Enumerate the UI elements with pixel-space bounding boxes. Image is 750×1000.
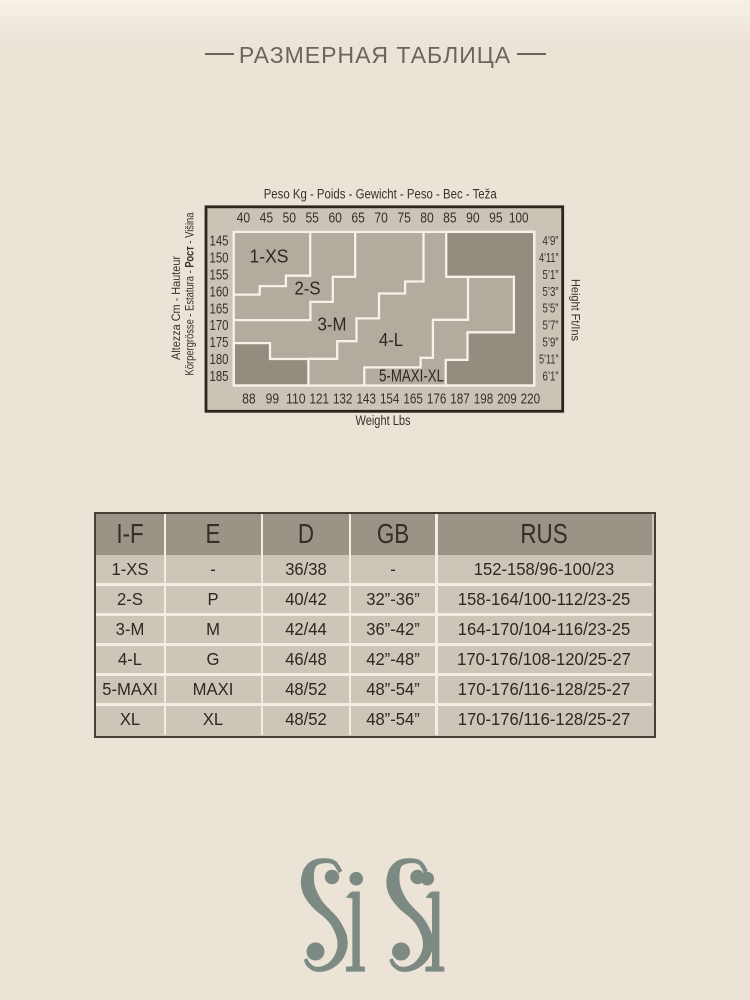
svg-text:145: 145 xyxy=(210,234,229,250)
svg-text:143: 143 xyxy=(356,392,376,408)
svg-text:154: 154 xyxy=(380,392,400,408)
svg-text:5’7”: 5’7” xyxy=(543,319,559,333)
svg-text:5’11”: 5’11” xyxy=(539,353,559,367)
svg-text:160: 160 xyxy=(210,284,229,300)
svg-text:209: 209 xyxy=(497,392,517,408)
svg-text:165: 165 xyxy=(403,392,423,408)
svg-text:2-S: 2-S xyxy=(295,278,321,299)
svg-text:5’1”: 5’1” xyxy=(543,268,559,282)
svg-text:70: 70 xyxy=(374,210,388,226)
svg-text:6’1”: 6’1” xyxy=(543,370,559,384)
svg-text:Körpergrösse - Estatura - Рост: Körpergrösse - Estatura - Рост - Višina xyxy=(183,212,197,375)
svg-text:187: 187 xyxy=(450,392,470,408)
svg-text:99: 99 xyxy=(266,392,280,408)
svg-text:85: 85 xyxy=(443,210,457,226)
svg-text:60: 60 xyxy=(328,210,342,226)
svg-text:50: 50 xyxy=(283,210,297,226)
svg-text:121: 121 xyxy=(310,392,330,408)
svg-text:5’3”: 5’3” xyxy=(543,285,559,299)
svg-text:4’11”: 4’11” xyxy=(539,251,559,265)
svg-text:5’9”: 5’9” xyxy=(543,336,559,350)
svg-text:220: 220 xyxy=(521,392,541,408)
svg-text:45: 45 xyxy=(260,210,274,226)
svg-text:Height Ft/Ins: Height Ft/Ins xyxy=(569,279,583,341)
svg-text:180: 180 xyxy=(210,352,229,368)
svg-text:132: 132 xyxy=(333,392,353,408)
svg-text:65: 65 xyxy=(351,210,365,226)
svg-text:Weight Lbs: Weight Lbs xyxy=(356,413,411,428)
svg-text:Altezza Cm - Hauteur: Altezza Cm - Hauteur xyxy=(169,256,183,360)
svg-text:1-XS: 1-XS xyxy=(250,246,289,267)
svg-text:95: 95 xyxy=(489,210,503,226)
svg-text:176: 176 xyxy=(427,392,447,408)
svg-text:40: 40 xyxy=(237,210,251,226)
svg-text:55: 55 xyxy=(305,210,319,226)
svg-text:150: 150 xyxy=(210,250,229,266)
svg-text:5-MAXI-XL: 5-MAXI-XL xyxy=(379,366,444,386)
svg-text:175: 175 xyxy=(210,335,229,351)
svg-text:90: 90 xyxy=(466,210,480,226)
svg-text:3-M: 3-M xyxy=(318,314,347,335)
svg-text:75: 75 xyxy=(397,210,411,226)
svg-text:88: 88 xyxy=(242,392,256,408)
svg-text:4’9”: 4’9” xyxy=(543,234,559,248)
svg-text:Peso Kg - Poids - Gewicht - Pe: Peso Kg - Poids - Gewicht - Peso - Bec -… xyxy=(264,187,497,202)
svg-text:185: 185 xyxy=(210,369,229,385)
svg-text:198: 198 xyxy=(474,392,494,408)
svg-text:4-L: 4-L xyxy=(379,329,403,350)
svg-text:110: 110 xyxy=(286,392,306,408)
svg-text:80: 80 xyxy=(420,210,434,226)
svg-text:155: 155 xyxy=(210,267,229,283)
svg-text:165: 165 xyxy=(210,301,229,317)
svg-text:170: 170 xyxy=(210,318,229,334)
svg-text:100: 100 xyxy=(509,210,529,226)
svg-text:5’5”: 5’5” xyxy=(543,302,559,316)
